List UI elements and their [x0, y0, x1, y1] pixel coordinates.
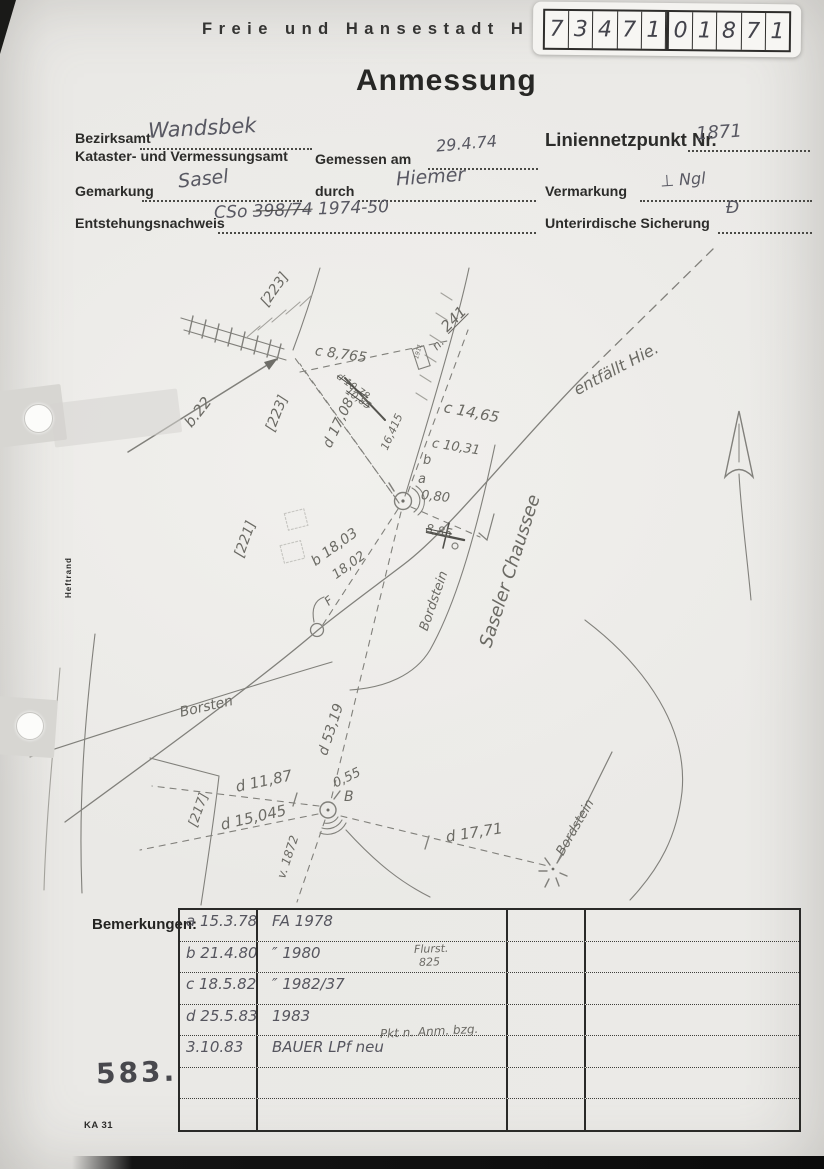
- remarks-cell-r4c1: d 25.5.83: [180, 1005, 258, 1036]
- remarks-cell-r6c4: [586, 1068, 799, 1099]
- remarks-cell-r2c4: [586, 942, 799, 973]
- remark-note-flurstueck-nr: 825: [419, 956, 440, 968]
- remarks-cell-r6c2: [258, 1068, 508, 1099]
- remarks-cell-r7c4: [586, 1099, 799, 1130]
- remarks-cell-r4c4: [586, 1005, 799, 1036]
- point-A-symbol: [389, 483, 424, 515]
- remarks-cell-r1c4: [586, 910, 799, 941]
- remark-note-flurstueck: Flurst.: [414, 943, 449, 955]
- remarks-cell-r3c3: [508, 973, 586, 1004]
- punch-hole-bottom: [16, 712, 44, 740]
- heftrand-label: Heftrand: [64, 540, 73, 598]
- remarks-cell-r1c1: a 15.3.78: [180, 910, 258, 941]
- remarks-cell-r5c3: [508, 1036, 586, 1067]
- punch-hole-top: [24, 404, 53, 433]
- archive-number: 583.: [95, 1055, 177, 1091]
- remarks-cell-r3c2: ″ 1982/37: [258, 973, 508, 1004]
- remarks-row-4: d 25.5.831983: [180, 1005, 799, 1037]
- remarks-cell-r5c2: BAUER LPf neu: [258, 1036, 508, 1067]
- remarks-cell-r1c3: [508, 910, 586, 941]
- remarks-cell-r7c3: [508, 1099, 586, 1130]
- remarks-cell-r3c4: [586, 973, 799, 1004]
- remarks-cell-r4c3: [508, 1005, 586, 1036]
- remarks-table: a 15.3.78FA 1978b 21.4.80″ 1980c 18.5.82…: [178, 908, 801, 1132]
- remarks-cell-r7c1: [180, 1099, 258, 1130]
- remarks-cell-r6c3: [508, 1068, 586, 1099]
- ladder-hatched-line: [181, 316, 286, 360]
- north-arrow-icon: [725, 411, 753, 600]
- sketch-label-pt-a: a: [418, 473, 426, 486]
- ray-ticks: [293, 793, 429, 849]
- remarks-cell-r1c2: FA 1978: [258, 910, 508, 941]
- remarks-row-6: [180, 1068, 799, 1100]
- remarks-cell-r6c1: [180, 1068, 258, 1099]
- remarks-row-1: a 15.3.78FA 1978: [180, 910, 799, 942]
- sketch-label-pt-b: b: [423, 454, 431, 467]
- erased-stamp-marks: [280, 509, 308, 563]
- remarks-cell-r3c1: c 18.5.82: [180, 973, 258, 1004]
- curb-curves: [346, 445, 683, 900]
- main-diagonal-line: [65, 249, 713, 822]
- remarks-cell-r7c2: [258, 1099, 508, 1130]
- boundary-lines: [246, 268, 469, 496]
- sketch-label-v-080: 0,80: [420, 489, 450, 505]
- remarks-cell-r5c4: [586, 1036, 799, 1067]
- scan-artifact-bottom-edge: [72, 1156, 824, 1169]
- remarks-row-7: [180, 1099, 799, 1130]
- remarks-row-5: 3.10.83BAUER LPf neu: [180, 1036, 799, 1068]
- remarks-row-2: b 21.4.80″ 1980: [180, 942, 799, 974]
- remarks-cell-r2c3: [508, 942, 586, 973]
- remarks-cell-r5c1: 3.10.83: [180, 1036, 258, 1067]
- remarks-cell-r2c1: b 21.4.80: [180, 942, 258, 973]
- form-code: KA 31: [84, 1120, 113, 1131]
- remarks-cell-r2c2: ″ 1980: [258, 942, 508, 973]
- remarks-row-3: c 18.5.82″ 1982/37: [180, 973, 799, 1005]
- scanned-survey-form: Freie und Hansestadt H 7347101871 Anmess…: [0, 0, 824, 1169]
- point-B-symbol: [320, 791, 346, 834]
- sketch-label-pt-B: B: [344, 790, 354, 804]
